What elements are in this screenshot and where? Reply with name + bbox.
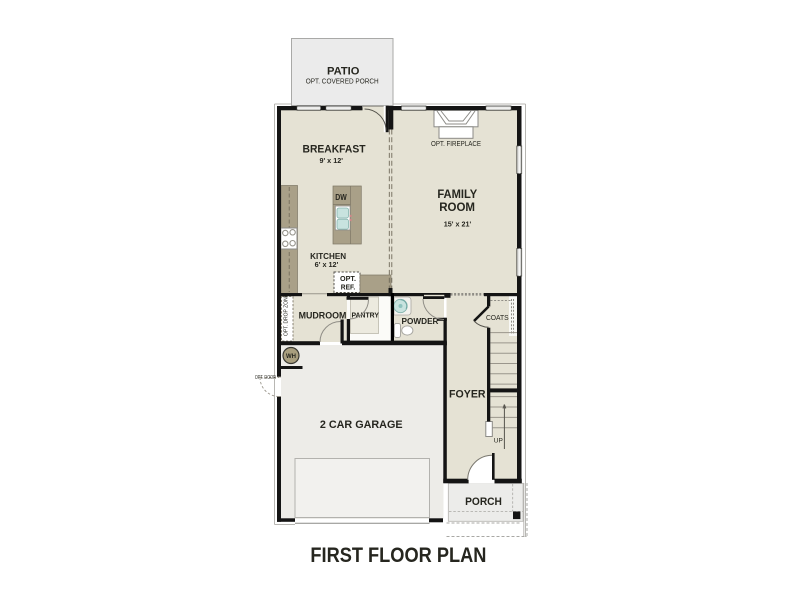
svg-text:15' x 21': 15' x 21' (444, 219, 472, 228)
svg-text:UP: UP (494, 438, 503, 445)
svg-text:6' x 12': 6' x 12' (315, 260, 339, 269)
svg-text:OPT. FIREPLACE: OPT. FIREPLACE (431, 139, 481, 148)
svg-text:POWDER: POWDER (402, 317, 439, 326)
svg-text:PANTRY: PANTRY (351, 313, 379, 320)
svg-text:FIRST FLOOR PLAN: FIRST FLOOR PLAN (310, 544, 486, 567)
svg-text:2 CAR GARAGE: 2 CAR GARAGE (320, 419, 403, 431)
svg-text:OPT. DROP ZONE: OPT. DROP ZONE (283, 294, 289, 336)
svg-text:OPT. COVERED PORCH: OPT. COVERED PORCH (306, 77, 379, 86)
svg-text:OPT. DOOR: OPT. DOOR (255, 375, 276, 381)
svg-text:BREAKFAST: BREAKFAST (303, 143, 366, 155)
svg-text:9' x 12': 9' x 12' (319, 156, 343, 165)
svg-text:FAMILY: FAMILY (437, 189, 477, 201)
svg-text:MUDROOM: MUDROOM (299, 310, 347, 320)
svg-text:DW: DW (335, 193, 347, 202)
svg-text:REF.: REF. (341, 285, 356, 292)
svg-text:FOYER: FOYER (449, 388, 486, 400)
svg-text:COATS: COATS (486, 313, 509, 322)
svg-text:ROOM: ROOM (439, 202, 475, 214)
svg-text:PORCH: PORCH (465, 496, 502, 508)
svg-text:OPT.: OPT. (340, 276, 356, 283)
svg-text:WH: WH (286, 353, 296, 360)
